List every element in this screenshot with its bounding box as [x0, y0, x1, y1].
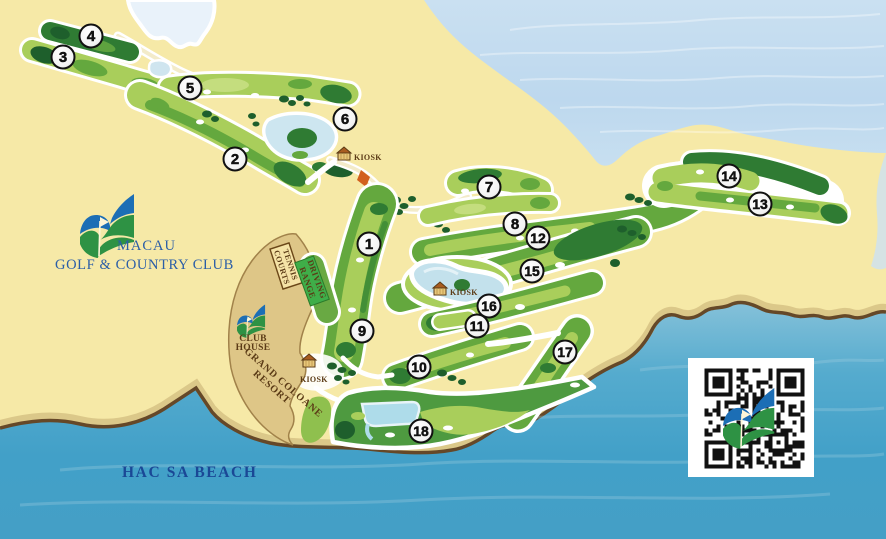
- svg-text:5: 5: [186, 80, 194, 97]
- svg-text:15: 15: [524, 263, 540, 279]
- svg-text:KIOSK: KIOSK: [354, 153, 382, 162]
- svg-text:11: 11: [470, 318, 485, 334]
- svg-text:17: 17: [557, 344, 573, 360]
- svg-text:3: 3: [59, 49, 67, 66]
- svg-text:KIOSK: KIOSK: [450, 288, 478, 297]
- svg-text:HAC SA BEACH: HAC SA BEACH: [122, 464, 257, 481]
- svg-text:1: 1: [365, 236, 373, 253]
- svg-text:9: 9: [358, 323, 366, 340]
- svg-text:14: 14: [721, 168, 737, 184]
- svg-text:13: 13: [752, 196, 768, 212]
- svg-text:12: 12: [530, 230, 546, 246]
- svg-text:KIOSK: KIOSK: [300, 375, 328, 384]
- svg-text:6: 6: [341, 111, 349, 128]
- svg-text:2: 2: [231, 151, 239, 168]
- svg-text:MACAU: MACAU: [117, 238, 176, 254]
- svg-text:8: 8: [511, 216, 519, 233]
- svg-text:GOLF & COUNTRY CLUB: GOLF & COUNTRY CLUB: [55, 257, 234, 273]
- svg-text:16: 16: [481, 298, 497, 314]
- svg-text:4: 4: [87, 28, 96, 45]
- svg-text:18: 18: [413, 423, 429, 439]
- svg-text:7: 7: [485, 179, 493, 196]
- svg-text:10: 10: [411, 359, 427, 375]
